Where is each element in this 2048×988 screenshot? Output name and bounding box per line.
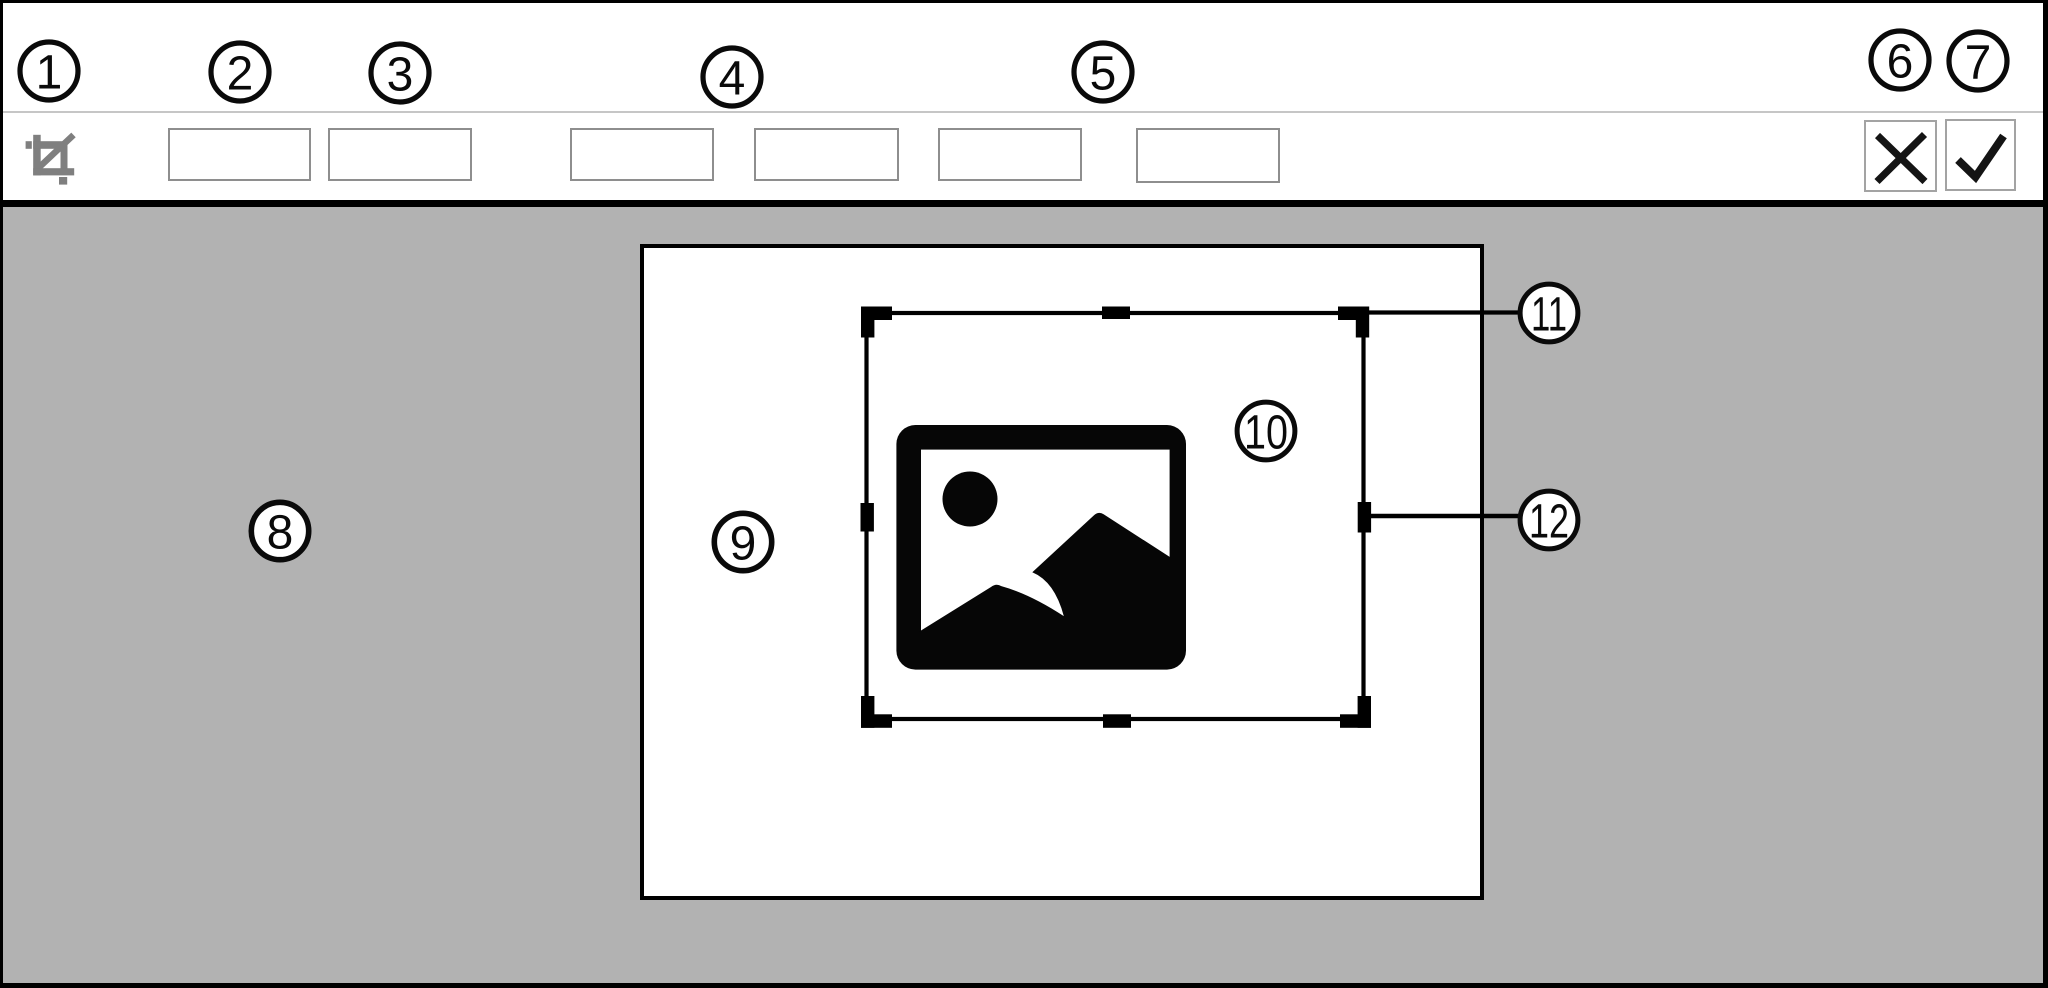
svg-text:4: 4 — [719, 53, 746, 106]
svg-text:11: 11 — [1531, 289, 1567, 342]
svg-text:1: 1 — [36, 47, 63, 100]
svg-text:8: 8 — [267, 507, 294, 560]
svg-text:12: 12 — [1529, 496, 1569, 549]
svg-text:3: 3 — [387, 49, 414, 102]
svg-text:10: 10 — [1244, 407, 1288, 460]
svg-text:2: 2 — [227, 48, 254, 101]
svg-text:9: 9 — [730, 518, 757, 571]
svg-text:5: 5 — [1090, 48, 1117, 101]
svg-text:7: 7 — [1965, 37, 1992, 90]
svg-text:6: 6 — [1887, 36, 1914, 89]
